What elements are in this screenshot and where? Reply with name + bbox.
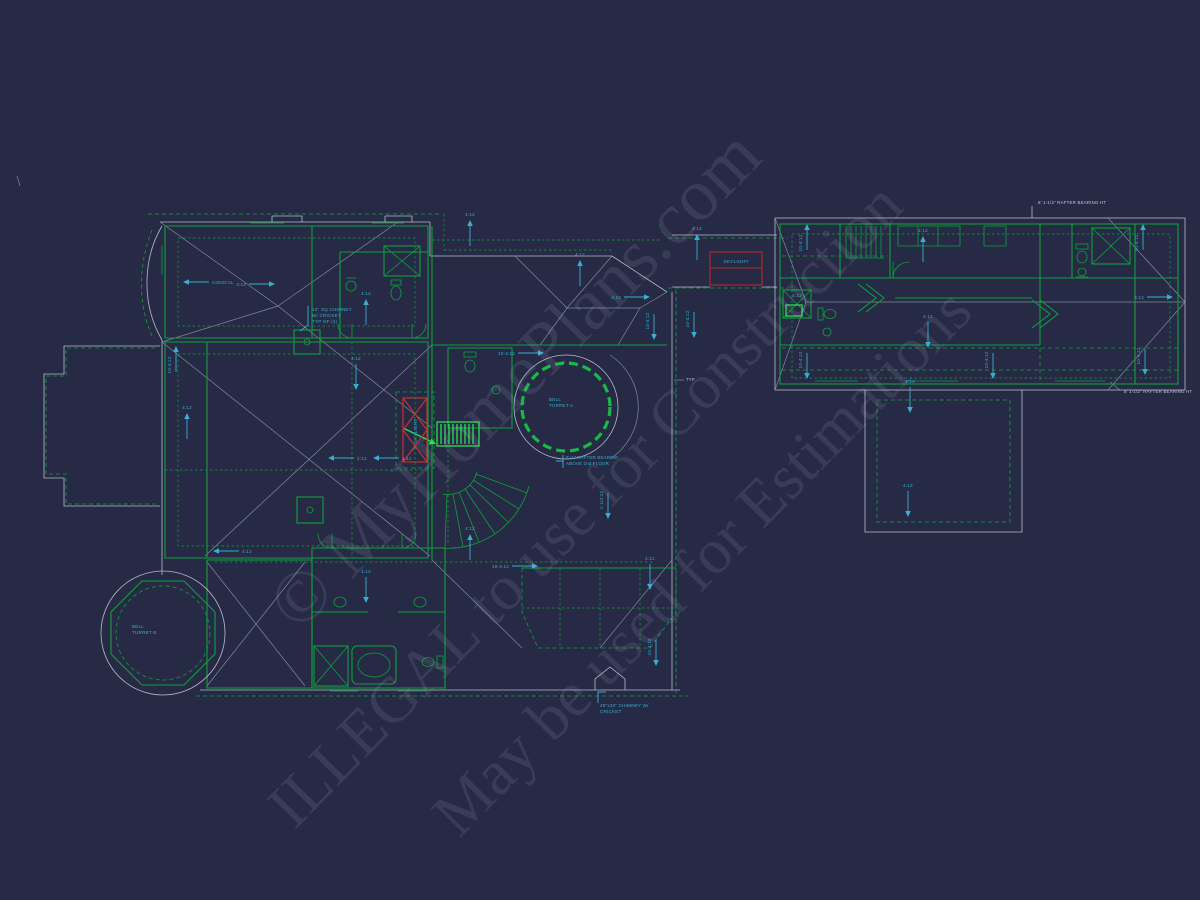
shower-icon: [384, 246, 420, 276]
slope-annotation: CONICAL: [183, 279, 234, 285]
slope-label: 4:12: [611, 295, 621, 300]
slope-annotation: 10-4:12: [498, 350, 544, 356]
slope-label: 10-4:12: [685, 310, 690, 327]
sink-icon: [823, 328, 831, 336]
slope-arrowhead: [1142, 369, 1148, 375]
bell-turret-b: [101, 571, 225, 695]
slope-label: 4:12: [692, 226, 702, 231]
slope-annotation: 2:12: [328, 455, 367, 461]
slope-label: 10-4:12: [645, 312, 650, 329]
slope-label: 4:12: [361, 291, 371, 296]
cricket-chimney-outline: [595, 667, 625, 690]
slope-label: 10-4:12: [492, 564, 509, 569]
slope-label: 10-4:12: [647, 638, 652, 655]
slope-arrowhead: [644, 294, 650, 300]
attic-access-icon: [1092, 228, 1130, 264]
slope-annotation: 10-4:12: [647, 638, 659, 666]
sink-icon: [334, 597, 346, 607]
toilet-icon: [818, 308, 836, 320]
roof-outline-right: [775, 206, 1185, 532]
slope-arrowhead: [269, 281, 275, 287]
bell-turret-b-label: BELLTURRET B: [132, 624, 157, 635]
spiral-stair: [441, 472, 529, 548]
skylight-box-label: SKYLIGHT: [723, 259, 748, 265]
slope-arrowhead: [1167, 294, 1173, 300]
sink-icon: [346, 278, 356, 291]
slope-annotation: 4:12: [903, 483, 913, 517]
slope-label: 4:12: [465, 526, 475, 531]
slope-annotation: 4:12: [692, 226, 702, 260]
slope-arrowhead: [905, 511, 911, 517]
skylight-vertical-label: SKYLIGHT: [413, 419, 418, 443]
chimney-callout-label: 12" SQ CHIMNEYW/ CRICKETTYP OF (2): [312, 307, 352, 324]
slope-label: 4:12: [1134, 295, 1144, 300]
slope-annotation: 4:12: [611, 294, 650, 300]
annotations-layer: 12" SQ CHIMNEYW/ CRICKETTYP OF (2)BELLTU…: [132, 200, 1192, 714]
slope-label: 4:12: [575, 252, 585, 257]
bathtub-icon: [352, 646, 396, 684]
slope-arrowhead: [804, 224, 810, 230]
sink-icon: [414, 597, 426, 607]
slope-arrowhead: [213, 548, 219, 554]
rafter-bearing-above-label: 9'-1" RAFTER BEARINGABOVE 2nd FLOOR: [566, 455, 619, 466]
slope-annotation: 10-4:12: [1134, 224, 1146, 251]
slope-arrowhead: [538, 350, 544, 356]
slope-arrowhead: [467, 220, 473, 226]
slope-annotation: 10-4:12: [984, 351, 996, 379]
slope-annotation: 10-4:12: [167, 346, 179, 373]
slope-label: 4:12: [645, 556, 655, 561]
slope-arrowhead: [363, 597, 369, 603]
chevron-vent-icon: [858, 284, 884, 312]
slope-annotation: 4:12: [351, 356, 361, 390]
slope-arrowhead: [183, 279, 189, 285]
stairs: [846, 226, 884, 258]
slope-annotation: 4:12: [361, 291, 371, 325]
sink-icon: [492, 386, 500, 394]
slope-label: CONICAL: [212, 280, 234, 285]
slope-annotation: 10-4:12: [685, 310, 697, 338]
slope-annotation: 4:12: [575, 252, 585, 286]
slope-annotation: 4:12: [918, 228, 928, 262]
slope-arrowhead: [363, 299, 369, 305]
lower-wing-outline: [865, 390, 1022, 532]
slope-annotation: 4:12: [792, 293, 802, 298]
slope-label: 10-4:12: [498, 351, 515, 356]
slope-label: 10-4:12: [1134, 234, 1139, 251]
bell-turret-a: [514, 355, 638, 459]
toilet-icon: [464, 352, 476, 372]
shower-icon: [314, 646, 348, 686]
slope-arrowhead: [1140, 224, 1146, 230]
toilet-icon: [391, 280, 401, 300]
slope-label: 10-4:12: [167, 356, 172, 373]
slope-annotation: 4:12: [465, 526, 475, 560]
slope-annotation: 10-4:12: [645, 312, 657, 340]
rafter-height-bottom-label: 8' 1-1/2" RAFTER BEARING HT: [1124, 389, 1192, 394]
slope-arrowhead: [184, 413, 190, 419]
slope-annotation: 10-4:12: [798, 224, 810, 251]
slope-annotation: 4:12: [182, 405, 192, 439]
slope-arrowhead: [328, 455, 334, 461]
slope-arrowhead: [920, 236, 926, 242]
slope-arrowhead: [691, 332, 697, 338]
slope-annotation: 4:12: [645, 556, 655, 590]
slope-label: 4:12: [361, 569, 371, 574]
bell-turret-a-label: BELLTURRET A: [549, 397, 574, 408]
slope-arrowhead: [373, 455, 379, 461]
slope-label: 1-1/2:12: [599, 491, 604, 510]
slope-annotation: 4:12: [923, 314, 933, 348]
floor-plan-svg: 12" SQ CHIMNEYW/ CRICKETTYP OF (2)BELLTU…: [0, 0, 1200, 900]
slope-label: 10-4:12: [1136, 347, 1141, 364]
vent-hatch-box: [437, 422, 479, 446]
chimney-callout-leader: [300, 306, 308, 331]
slope-label: 10-4:12: [984, 351, 989, 368]
slope-annotation: 1:12: [373, 455, 412, 461]
slope-label: 4:12: [182, 405, 192, 410]
stray-mark: [17, 176, 20, 186]
slope-arrowhead: [907, 407, 913, 413]
slope-label: 4:12: [905, 379, 915, 384]
slope-annotation: 4:12: [236, 281, 275, 287]
lower-wing-overhang: [877, 400, 1010, 522]
dashed-overhang-right: [782, 234, 1178, 384]
slope-label: 4:12: [242, 549, 252, 554]
chimney-square-2: [297, 497, 323, 523]
slope-arrowhead: [651, 334, 657, 340]
slope-arrowhead: [353, 384, 359, 390]
walls-right: [780, 224, 1178, 384]
slope-annotation: 1-1/2:12: [599, 491, 611, 519]
slope-label: 1:12: [402, 456, 412, 461]
slope-annotation: 4:12: [213, 548, 252, 554]
angled-bay: [522, 568, 676, 648]
chevron-vent-icon: [1032, 300, 1058, 328]
slope-label: 4:12: [351, 356, 361, 361]
slope-label: 10-4:12: [798, 234, 803, 251]
skylight-connector: [710, 252, 762, 285]
slope-label: 2:12: [357, 456, 367, 461]
slope-annotation: 4:12: [361, 569, 371, 603]
slope-arrowhead: [653, 660, 659, 666]
slope-arrowhead: [173, 346, 179, 352]
rafter-height-top-label: 8' 1-1/2" RAFTER BEARING HT: [1038, 200, 1106, 205]
slope-label: 4:12: [918, 228, 928, 233]
slope-label: 4:12: [903, 483, 913, 488]
slope-annotation: 10-4:12: [798, 351, 810, 379]
slope-label: 10-4:12: [798, 351, 803, 368]
slope-label: 4:12: [465, 212, 475, 217]
chimney-cricket-label: 48"x32" CHIMNEY W/CRICKET: [600, 703, 649, 714]
slope-annotation: 4:12: [465, 212, 475, 246]
slope-label: 4:12: [792, 293, 802, 298]
slope-label: 4:12: [923, 314, 933, 319]
typ-label: TYP: [686, 377, 695, 382]
slope-arrowhead: [577, 260, 583, 266]
slope-label: 4:12: [236, 282, 246, 287]
sink-icon: [1076, 268, 1088, 277]
cad-canvas: 12" SQ CHIMNEYW/ CRICKETTYP OF (2)BELLTU…: [0, 0, 1200, 900]
toilet-icon: [1076, 244, 1088, 263]
slope-arrowhead: [605, 513, 611, 519]
slope-arrowhead: [467, 534, 473, 540]
toilet-icon: [422, 656, 443, 668]
slope-annotation: 4:12: [1134, 294, 1173, 300]
